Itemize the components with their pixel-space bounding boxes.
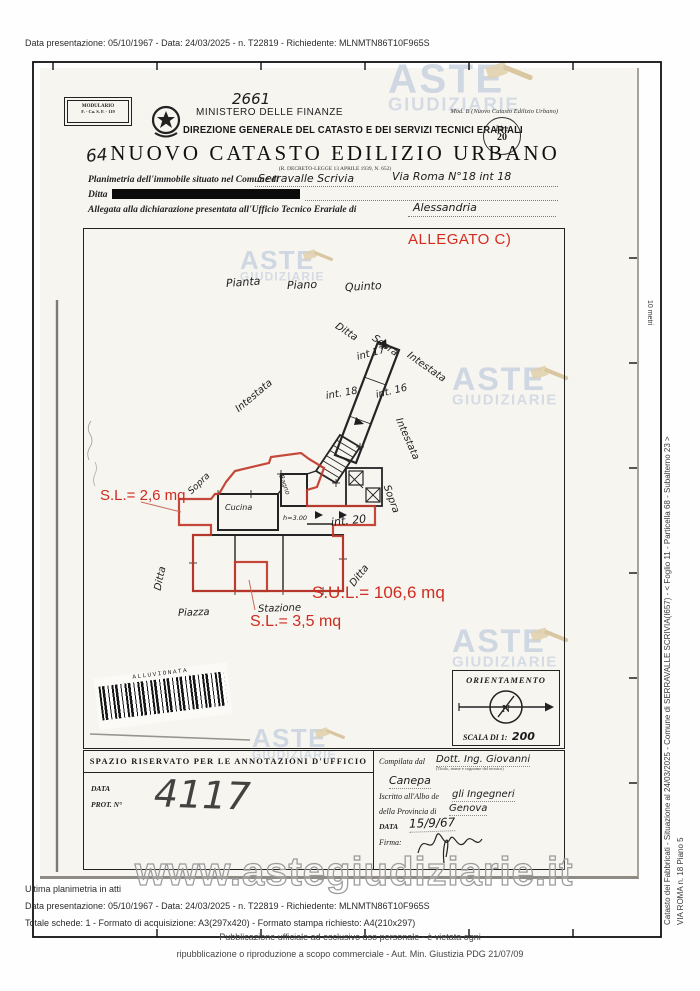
form-line1-value-comune: Serravalle Scrivia bbox=[258, 172, 354, 185]
form-line3-label: Allegata alla dichiarazione presentata a… bbox=[88, 205, 356, 215]
form-line3-rule bbox=[408, 215, 556, 217]
side-caption-line1: Catasto dei Fabbricati - Situazione al 2… bbox=[663, 285, 672, 925]
form-line3-value: Alessandria bbox=[413, 201, 477, 214]
modulario-box: MODULARIO F. - Ca. S. F. - 119 bbox=[67, 100, 129, 123]
orientamento-title: ORIENTAMENTO bbox=[453, 675, 559, 685]
office-date-label: DATA bbox=[379, 822, 398, 831]
albo-label: Iscritto all'Albo de bbox=[379, 792, 439, 801]
ruler-scale-label: 10 metri bbox=[646, 300, 653, 340]
footer-line3: Totale schede: 1 - Formato di acquisizio… bbox=[25, 918, 415, 928]
orientation-box: ORIENTAMENTO N SCALA DI 1: 200 bbox=[452, 670, 560, 746]
provincia-handwritten: Genova bbox=[449, 803, 487, 816]
footer-notice1: Pubblicazione ufficiale ad esclusivo uso… bbox=[0, 932, 700, 942]
albo-handwritten: gli Ingegneri bbox=[452, 789, 515, 802]
mod-b-label: Mod. B (Nuovo Catasto Edilizio Urbano) bbox=[408, 108, 558, 115]
compilata-subcaption: (Titolo, nome e cognome del tecnico) bbox=[436, 766, 504, 771]
ministry-line: MINISTERO DELLE FINANZE bbox=[196, 107, 343, 118]
directorate-line: DIREZIONE GENERALE DEL CATASTO E DEI SER… bbox=[183, 124, 523, 136]
provincia-label: della Provincia di bbox=[379, 807, 436, 816]
side-caption-line2: VIA ROMA n. 18 Piano 5 bbox=[676, 725, 685, 925]
office-prot-label: PROT. N° bbox=[91, 800, 122, 809]
footer-line2: Data presentazione: 05/10/1967 - Data: 2… bbox=[25, 901, 430, 911]
form-line1-label: Planimetria dell'immobile situato nel Co… bbox=[88, 175, 279, 185]
office-data-label: DATA bbox=[91, 784, 110, 793]
handwritten-prot-number: 4117 bbox=[153, 771, 251, 818]
redaction-bar bbox=[112, 189, 300, 199]
svg-text:N: N bbox=[502, 703, 510, 715]
compass-icon: N bbox=[457, 685, 555, 727]
scale-value-handwritten: 200 bbox=[512, 730, 535, 743]
form-line1-rule bbox=[255, 185, 558, 187]
form-line1-value-via: Via Roma N°18 int 18 bbox=[392, 170, 511, 183]
compilata-handwritten-surname: Canepa bbox=[389, 774, 431, 789]
footer-notice2: ripubblicazione o riproduzione a scopo c… bbox=[0, 949, 700, 959]
firma-label: Firma: bbox=[379, 838, 402, 847]
footer-line1: Ultima planimetria in atti bbox=[25, 884, 121, 894]
document-title: NUOVO CATASTO EDILIZIO URBANO bbox=[100, 141, 570, 166]
italy-emblem-icon bbox=[150, 104, 182, 142]
handwritten-protocol-number: 2661 bbox=[232, 90, 270, 108]
form-ditta-label: Ditta bbox=[88, 190, 108, 200]
modulario-line2: F. - Ca. S. F. - 119 bbox=[68, 109, 128, 114]
office-section-header: SPAZIO RISERVATO PER LE ANNOTAZIONI D'UF… bbox=[84, 756, 373, 766]
office-header-rule bbox=[84, 772, 373, 773]
url-watermark: www.astegiudiziarie.it bbox=[135, 850, 573, 895]
compilata-label: Compilata dal bbox=[379, 757, 425, 766]
scanned-cadastral-document-page: Data presentazione: 05/10/1967 - Data: 2… bbox=[0, 0, 700, 991]
scale-label: SCALA DI 1: bbox=[463, 733, 507, 742]
